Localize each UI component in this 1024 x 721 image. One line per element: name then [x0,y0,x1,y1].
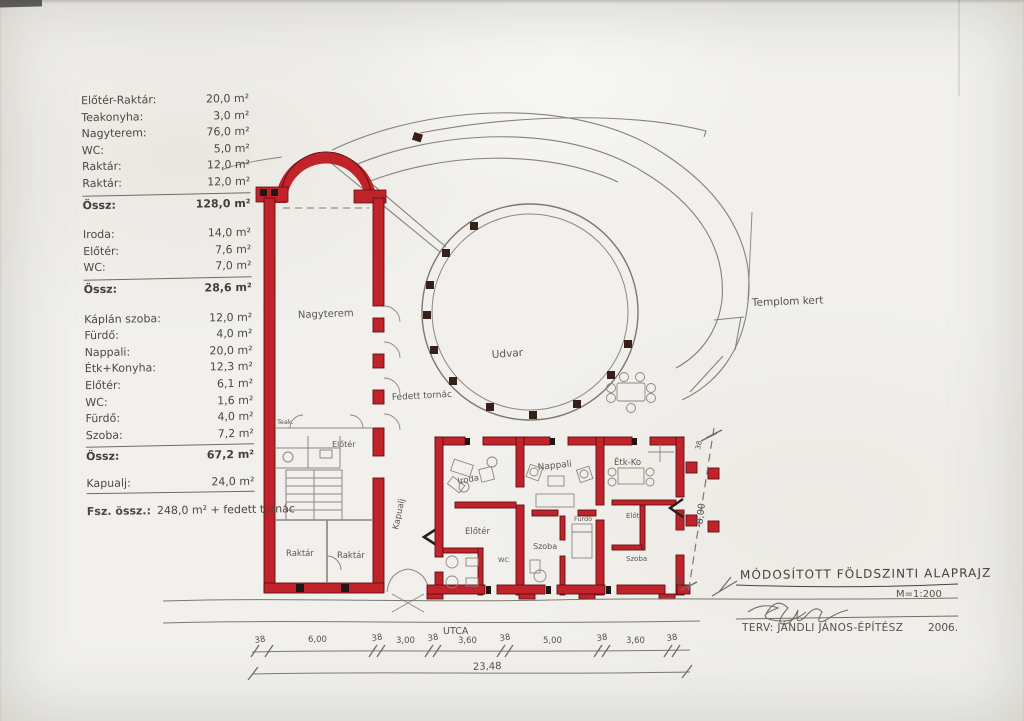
signature [748,603,848,624]
scanned-drawing-sheet: Udvar Fedett tornác [0,0,1024,721]
room-name: Fürdő: [85,411,120,428]
room-name: Étk+Konyha: [85,360,156,378]
room-name: Nagyterem: [81,125,146,142]
room-name: Előtér: [83,243,119,260]
kapualj-row: Kapualj:24,0 m² [86,474,254,495]
area-schedule: Előtér-Raktár:20,0 m² Teakonyha:3,0 m² N… [81,91,255,521]
room-area: 7,6 m² [215,242,251,259]
room-label-teak: Teak. [276,418,294,426]
dim-seg-2: 38 [371,633,383,644]
courtyard-circle: Udvar Fedett tornác [392,204,638,420]
street-lines [163,598,958,623]
tall-building: Nagyterem Teak. Előtér Raktár Raktár [256,152,400,593]
total-label: Össz: [86,449,119,466]
room-name: Raktár: [82,176,122,193]
area-schedule-group-1: Előtér-Raktár:20,0 m² Teakonyha:3,0 m² N… [81,91,251,214]
courtyard-outer-ring [422,204,638,420]
room-area: 7,0 m² [215,258,251,275]
room-area: 12,3 m² [210,359,253,376]
area-label-templom-kert: Templom kert [751,295,824,310]
room-label-raktar-a: Raktár [286,549,314,559]
dim-seg-5: 3,60 [458,636,477,646]
dimension-chain: 38 6,00 38 3,00 38 3,60 38 5,00 38 3,60 … [248,633,692,680]
room-label-elot-c: Előt. [626,511,642,520]
room-label-nagyterem: Nagyterem [298,308,354,321]
room-name: WC: [85,394,107,411]
dim-seg-9: 3,60 [626,636,645,646]
room-name: Nappali: [85,344,131,361]
schedule-row: WC:7,0 m² [83,258,251,277]
dim-seg-0: 38 [254,635,266,646]
room-name: Raktár: [82,159,122,176]
room-name: Előtér-Raktár: [81,92,156,110]
bottom-row-walls [427,437,719,599]
room-area: 12,0 m² [207,174,250,191]
room-label-szoba-b: Szoba [533,542,557,551]
area-schedule-group-2: Iroda:14,0 m² Előtér:7,6 m² WC:7,0 m² Ös… [83,225,252,299]
room-name: Teakonyha: [81,109,143,126]
room-label-nappali: Nappali [537,459,572,473]
room-area: 5,0 m² [214,141,250,158]
room-area: 4,0 m² [217,409,253,426]
room-label-etk-ko: Étk-Ko [614,456,641,468]
room-label-raktar-b: Raktár [337,551,365,561]
room-label-kapualj: Kapualj [391,498,407,531]
room-area: 14,0 m² [208,225,251,242]
dim-seg-4: 38 [427,633,439,644]
room-label-fedett-tornac: Fedett tornác [392,390,453,403]
room-area: 6,1 m² [217,376,253,393]
room-area: 12,0 m² [209,309,252,326]
grand-total-row: Fsz. össz.:248,0 m² + fedett tornác [87,502,255,521]
room-label-eloter-tall: Előtér [332,439,356,449]
total-area: 28,6 m² [204,280,251,297]
drawing-scale: M=1:200 [896,589,942,600]
dim-seg-3: 3,00 [396,636,415,646]
room-name: WC: [83,260,105,277]
schedule-total-row: Össz:67,2 m² [86,447,254,466]
room-label-udvar: Udvar [491,347,524,361]
room-name: Iroda: [83,227,115,244]
total-label: Össz: [84,282,117,299]
schedule-row: Raktár:12,0 m² [82,174,250,193]
total-label: Össz: [82,197,115,214]
tall-building-walls [264,198,384,593]
room-label-eloter-a: Előtér [465,526,490,537]
room-area: 7,2 m² [218,426,254,443]
room-area: 24,0 m² [211,474,254,491]
room-area: 20,0 m² [206,91,249,108]
dim-seg-10: 38 [666,633,678,644]
garden-path-sweep [222,113,752,400]
room-label-szoba-c: Szoba [626,555,647,563]
room-name: Szoba: [86,427,123,444]
boundary-tick-top: 38 [694,440,704,450]
dim-seg-7: 5,00 [543,636,562,646]
total-area: 128,0 m² [196,195,251,212]
room-name: Fürdő: [84,328,119,345]
schedule-total-row: Össz:128,0 m² [82,195,250,214]
area-schedule-group-3: Káplán szoba:12,0 m² Fürdő:4,0 m² Nappal… [84,309,254,466]
room-label-wc-a: WC [498,556,509,564]
boundary-offset-dim: -8,00 [694,503,708,529]
room-name: WC: [82,143,104,160]
room-area: 3,0 m² [213,107,249,124]
dim-seg-6: 38 [499,633,511,644]
schedule-total-row: Össz:28,6 m² [84,280,252,299]
room-area: 1,6 m² [217,392,253,409]
room-name: Kapualj: [86,475,131,492]
grand-total-label: Fsz. össz.: [87,504,151,521]
courtyard-inner-ring [432,214,628,410]
grand-total-value: 248,0 m² + fedett tornác [157,502,295,521]
dimension-total: 23,48 [473,661,502,673]
designer-credit: TERV: JÁNDLI JÁNOS-ÉPÍTÉSZ [741,621,903,634]
schedule-row: Szoba:7,2 m² [86,426,254,445]
drawing-title: MÓDOSÍTOTT FÖLDSZINTI ALAPRAJZ [740,564,992,582]
room-area: 76,0 m² [206,124,249,141]
room-area: 12,0 m² [207,157,250,174]
room-name: Előtér: [85,378,121,395]
dim-seg-8: 38 [596,633,608,644]
total-area: 67,2 m² [207,447,254,464]
room-name: Káplán szoba: [84,311,161,329]
room-label-iroda: Iroda [457,473,480,487]
room-label-furdo-b: Fürdő [574,514,592,523]
dim-seg-1: 6,00 [308,635,327,645]
room-area: 4,0 m² [216,326,252,343]
room-area: 20,0 m² [209,343,252,360]
drawing-year: 2006. [928,622,958,634]
